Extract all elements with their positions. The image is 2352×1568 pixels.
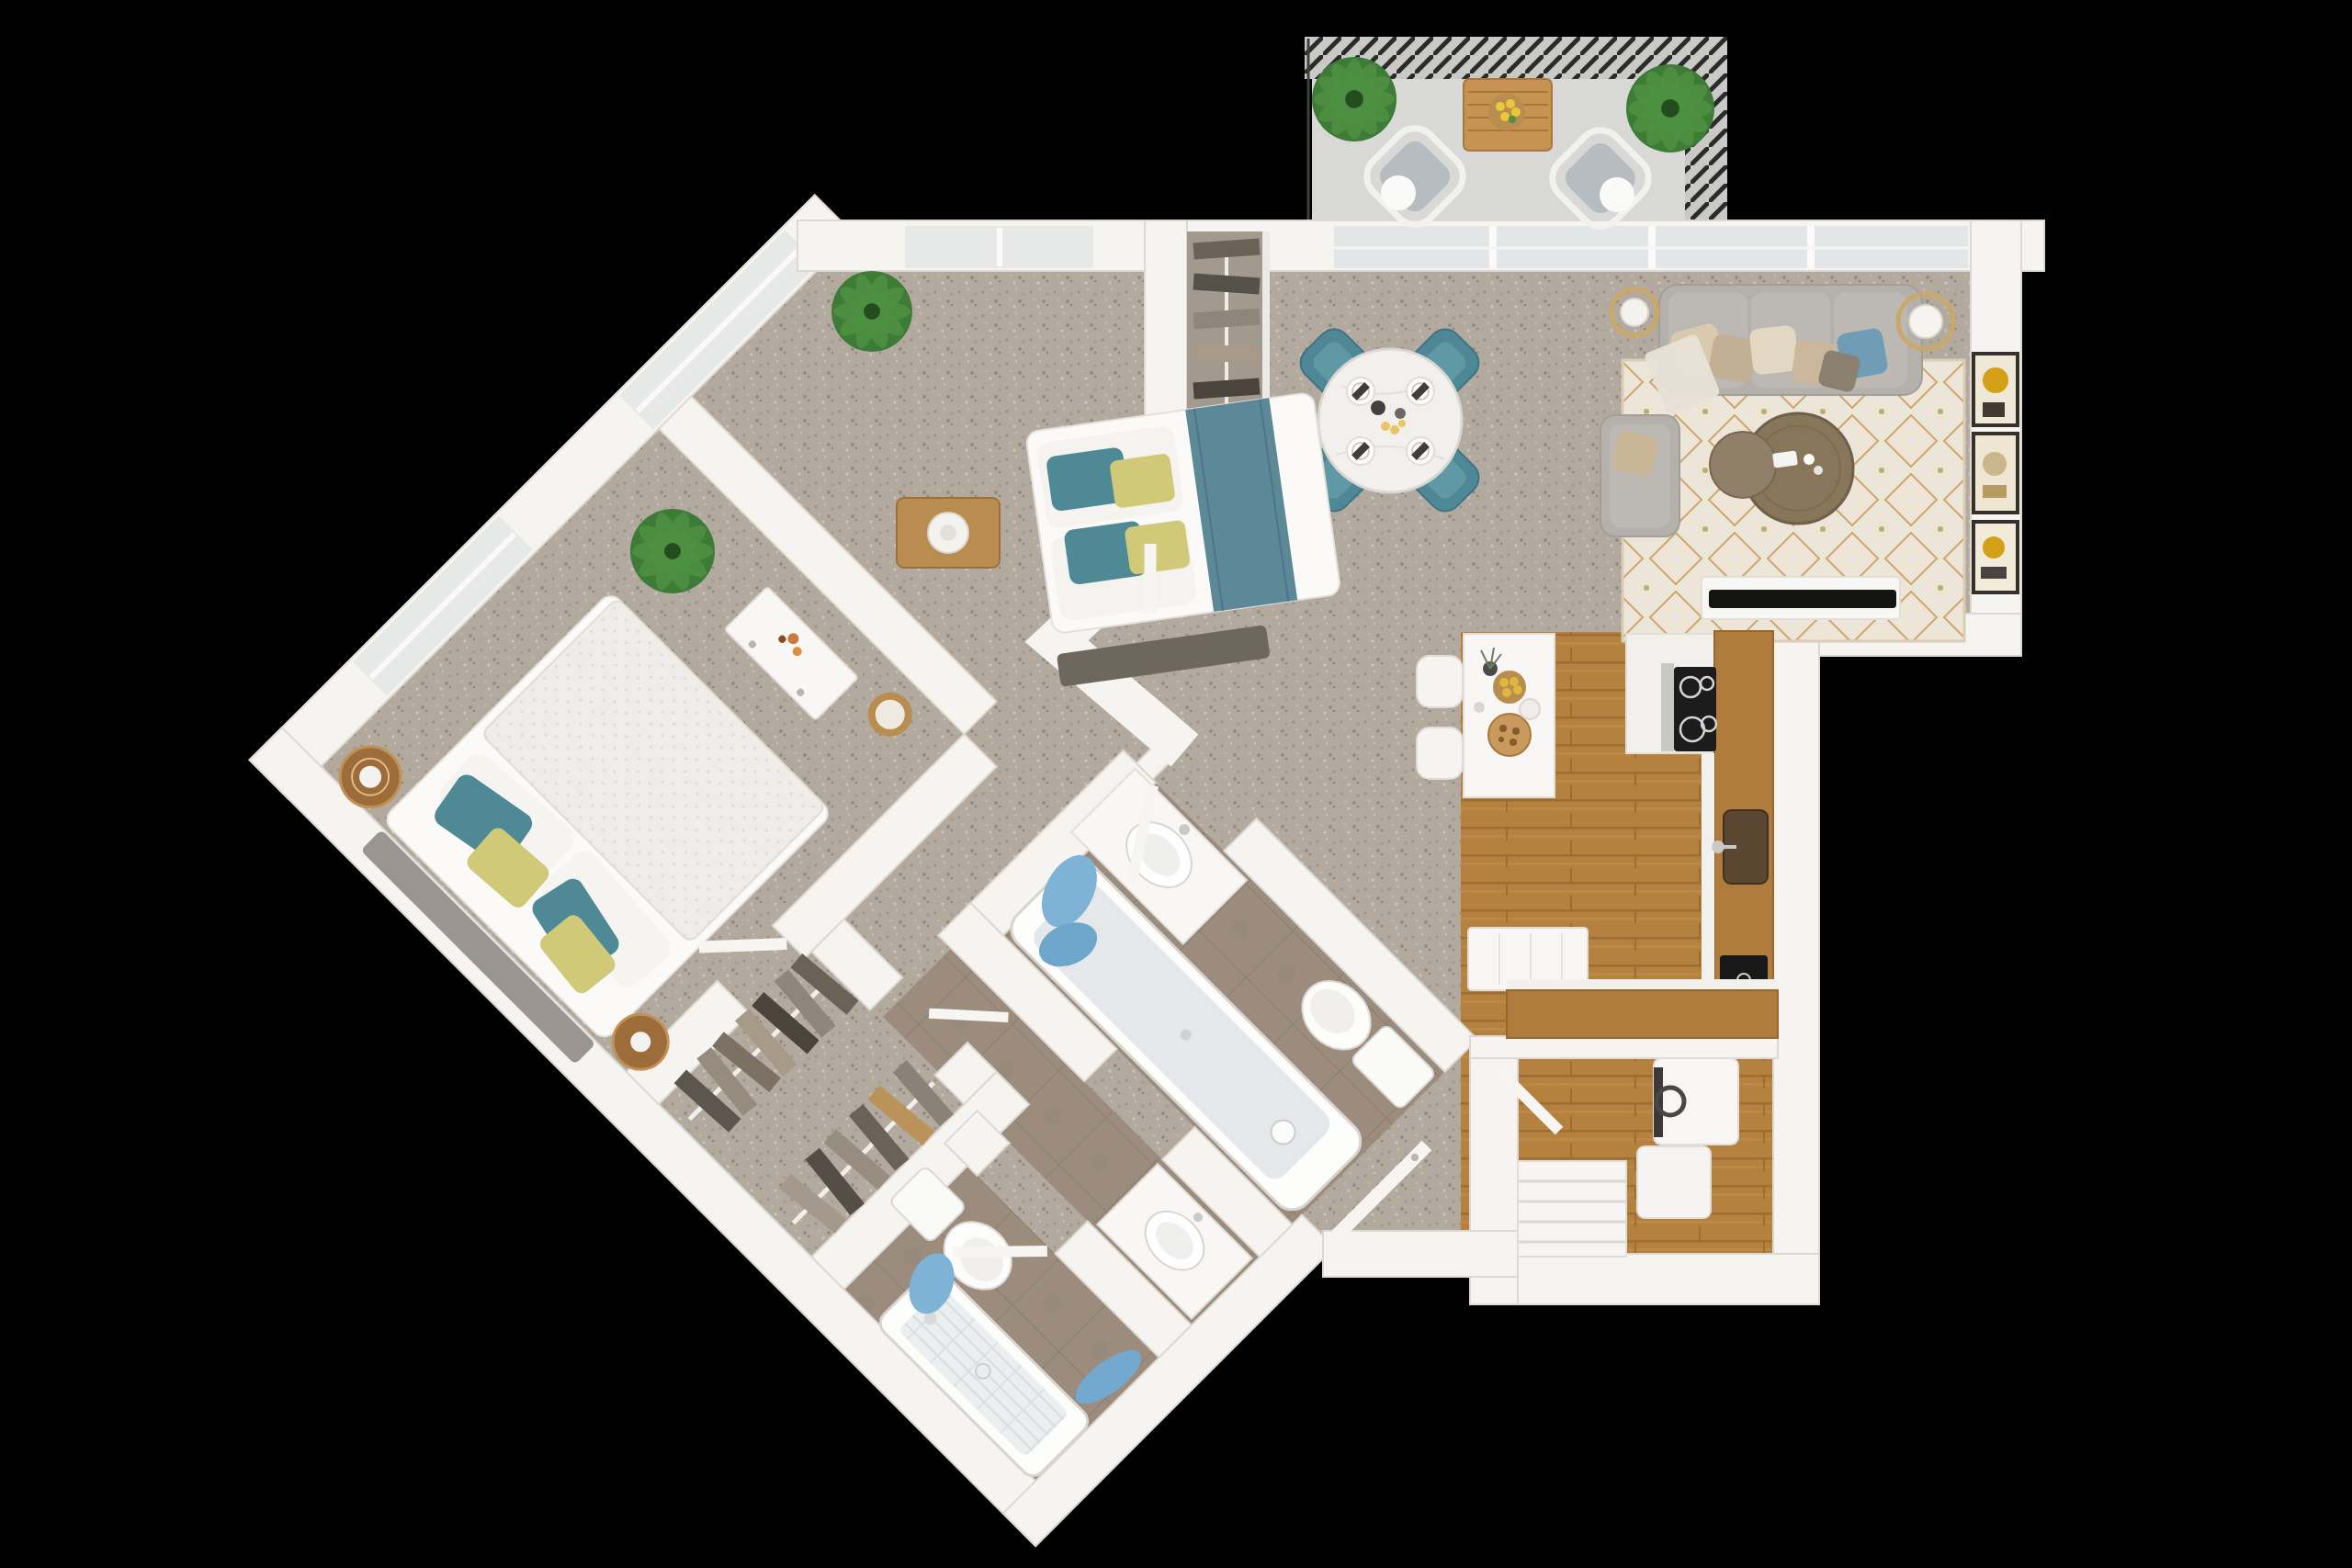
balcony-chair-right-pillow	[1600, 177, 1634, 212]
floor-lamp-left-shade	[1621, 299, 1648, 326]
wall-laundry-bottom	[1470, 1254, 1819, 1304]
lemon	[1500, 112, 1510, 121]
wall-laundry-north	[1470, 1036, 1778, 1058]
art-3-motif-b	[1981, 567, 2007, 579]
dining-table	[1318, 349, 1462, 492]
table-centerpiece	[1395, 408, 1406, 419]
balcony-chair-left-pillow	[1381, 175, 1416, 210]
floor-lamp-right-shade	[1909, 305, 1942, 338]
fruit	[1510, 677, 1519, 686]
dryer	[1637, 1146, 1711, 1218]
lemon	[1496, 102, 1505, 111]
floor-plan-render	[0, 0, 2352, 1568]
floor-plan-stage	[0, 0, 2352, 1568]
art-2-motif-b	[1983, 485, 2007, 498]
island-stool	[1417, 728, 1463, 779]
board-snack	[1498, 737, 1504, 742]
candle	[1381, 422, 1390, 431]
art-1-motif	[1983, 367, 2008, 393]
fruit	[1499, 678, 1509, 687]
stove-steel	[1661, 663, 1674, 751]
coffee-table-cup	[1814, 466, 1823, 475]
art-1-motif-b	[1983, 402, 2005, 417]
fruit	[1513, 685, 1522, 694]
art-2-motif	[1983, 452, 2007, 476]
fruit	[1502, 688, 1511, 697]
candle	[1390, 425, 1399, 434]
armchair-pillow	[1611, 430, 1659, 478]
plant-core	[864, 303, 880, 320]
bedroom1-pillow-yellow	[1124, 520, 1191, 576]
lemon-leaf	[1509, 116, 1516, 123]
bedroom1-lamp-center	[940, 525, 956, 541]
lemon	[1506, 99, 1515, 108]
island-plate	[1520, 699, 1540, 719]
island-board	[1488, 714, 1531, 756]
bedroom1-pillow-yellow	[1109, 453, 1176, 509]
cooktop	[1674, 667, 1716, 751]
board-snack	[1510, 739, 1517, 746]
kitchen-counter-edge-bottom	[1507, 979, 1778, 990]
board-snack	[1512, 728, 1520, 735]
wall-kitchen-right	[1773, 614, 1819, 1304]
plant-core	[1661, 99, 1679, 118]
table-centerpiece	[1371, 400, 1385, 415]
plant-core	[664, 543, 681, 559]
sofa-pillow-cream	[1749, 325, 1800, 376]
lemon	[1511, 107, 1521, 117]
kitchen-cabinets-bottom	[1507, 990, 1778, 1038]
art-3-motif	[1983, 536, 2005, 558]
island-stool	[1417, 656, 1463, 707]
coffee-table-small	[1710, 432, 1776, 498]
plant-core	[1345, 90, 1363, 108]
island-cup	[1474, 702, 1485, 713]
coffee-table-cup	[1804, 454, 1815, 465]
washer	[1654, 1058, 1738, 1145]
candle	[1398, 420, 1406, 427]
wall-entry-bottom	[1323, 1231, 1518, 1277]
board-snack	[1499, 725, 1507, 732]
entry-door-knob	[1411, 1154, 1419, 1161]
tv-screen	[1709, 590, 1896, 608]
